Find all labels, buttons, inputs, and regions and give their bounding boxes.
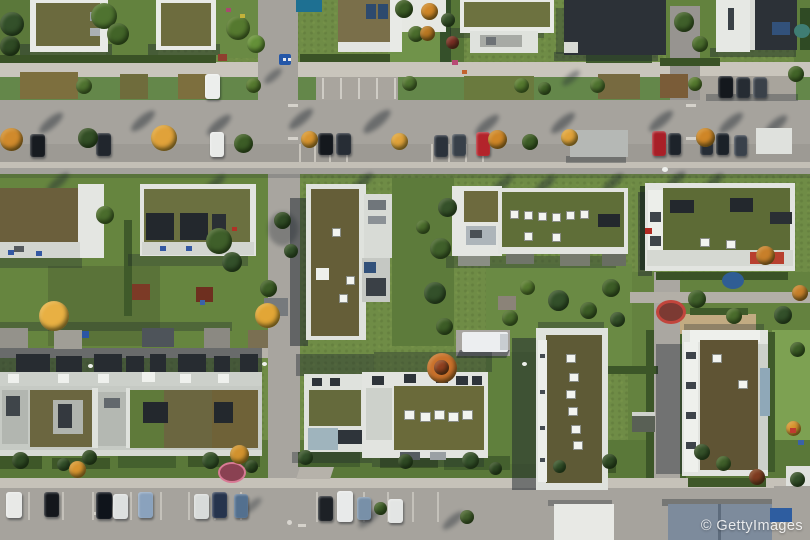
post (262, 362, 267, 366)
skylight (568, 407, 578, 416)
tree (692, 36, 708, 52)
green-roof (161, 3, 211, 46)
tree (694, 444, 710, 460)
autumn-tree (420, 26, 435, 41)
skylight (538, 212, 547, 221)
car (318, 133, 333, 155)
bay-line (28, 492, 30, 520)
sign-mark (283, 58, 286, 61)
shed (0, 328, 28, 348)
tree (0, 36, 20, 56)
tree (438, 198, 457, 217)
roof-clutter (330, 378, 340, 386)
solar-panel (378, 4, 388, 19)
solar-panel (180, 213, 208, 240)
car (716, 133, 729, 155)
post (662, 167, 668, 172)
window (686, 412, 696, 419)
building (338, 42, 392, 52)
autumn-tree (561, 129, 578, 146)
bay-line (358, 78, 360, 99)
garden-item (462, 70, 467, 74)
garden-item (200, 300, 205, 305)
solar-panel (214, 402, 233, 423)
roof-clutter (372, 376, 384, 385)
teal-roof (296, 0, 322, 12)
garden-item (218, 54, 227, 61)
road-dash (288, 104, 298, 107)
path (630, 292, 810, 303)
skylight (404, 410, 415, 420)
tree (245, 460, 258, 473)
sedum-bed (660, 74, 688, 98)
solar-panel (730, 198, 753, 212)
skylight (462, 410, 473, 420)
aerial-photograph: © GettyImages (0, 0, 810, 540)
bay-line (62, 492, 64, 520)
tree (790, 472, 805, 487)
road-vertical (258, 0, 298, 100)
tree (436, 318, 453, 335)
roof-clutter (404, 374, 416, 383)
playhouse (498, 296, 516, 310)
carport (570, 130, 628, 157)
autumn-tree (0, 128, 23, 151)
bay-line (376, 78, 378, 99)
roof-access (8, 374, 19, 383)
shed (632, 416, 655, 432)
terrace-clutter (602, 252, 626, 266)
bay-line (130, 492, 132, 520)
pool (722, 272, 744, 289)
tree (726, 308, 742, 324)
car (96, 133, 111, 156)
tree (520, 280, 535, 295)
roof-clutter (470, 230, 482, 238)
skylight (580, 210, 589, 219)
window (686, 382, 696, 389)
skylight (510, 210, 519, 219)
car (753, 77, 767, 98)
autumn-tree (434, 360, 449, 375)
terrace-clutter (560, 254, 590, 266)
tree (548, 290, 569, 311)
road-dash (686, 104, 696, 107)
getty-watermark: © GettyImages (701, 518, 803, 534)
tree (395, 0, 413, 18)
roof-clutter (650, 236, 661, 246)
window (686, 352, 696, 359)
carport (756, 128, 792, 154)
tree (460, 510, 474, 524)
tree (222, 252, 242, 272)
roof-clutter (456, 376, 468, 385)
skylight (434, 410, 445, 420)
garden-item (36, 251, 42, 256)
shadow-band (0, 168, 810, 178)
tree (430, 238, 451, 259)
garden-item (226, 8, 231, 12)
tree (688, 77, 702, 91)
window (540, 426, 545, 430)
bay-line (394, 78, 396, 99)
building-shadow (566, 156, 626, 163)
skylight (346, 276, 355, 285)
sedum-bed (120, 74, 148, 99)
car (736, 77, 750, 98)
post (88, 364, 93, 368)
manhole (287, 520, 292, 525)
tree (774, 306, 792, 324)
autumn-tree (255, 303, 280, 328)
tree (688, 290, 706, 308)
tree (462, 452, 479, 469)
roof-clutter (728, 8, 734, 30)
solar-panel (143, 402, 168, 423)
tree (790, 342, 805, 357)
hedge (660, 58, 720, 66)
skylight (566, 354, 576, 363)
tree (489, 462, 502, 475)
green-roof (164, 390, 212, 448)
roof-clutter (366, 278, 386, 296)
bay-line (448, 144, 450, 162)
tree (602, 279, 620, 297)
autumn-tree (792, 285, 808, 301)
garden-item (798, 440, 804, 445)
solar-panel (770, 212, 792, 224)
tree (274, 212, 291, 229)
autumn-tree (301, 131, 318, 148)
skylight (569, 373, 579, 382)
skylight (726, 240, 736, 249)
bay-line (437, 492, 439, 522)
skylight (524, 211, 533, 220)
autumn-tree (151, 125, 177, 151)
garden-item (452, 60, 458, 65)
window (540, 390, 545, 394)
building-shadow (656, 344, 682, 474)
glass-roof (308, 428, 338, 450)
roof-structure (150, 354, 166, 374)
bush-red (749, 469, 765, 485)
car (668, 133, 681, 155)
solar-panel (146, 213, 174, 240)
garden-item (240, 14, 245, 18)
dark-roof (564, 0, 666, 55)
roof-clutter (232, 227, 237, 231)
tree (502, 310, 518, 326)
roof-access (142, 372, 155, 382)
tree (206, 228, 232, 254)
parking-bay (316, 77, 398, 100)
tree (514, 78, 529, 93)
solar-panel (772, 22, 790, 35)
pool (794, 24, 810, 38)
roof-clutter (104, 398, 120, 408)
carport (554, 504, 614, 540)
tree (96, 206, 114, 224)
skylight (712, 354, 722, 363)
post (522, 362, 527, 366)
garden-item (790, 428, 796, 433)
solar-panel (364, 262, 376, 273)
roof-clutter (58, 404, 72, 428)
hedge (118, 455, 176, 468)
window (540, 458, 545, 462)
shed (248, 330, 268, 348)
roof-clutter (90, 28, 100, 36)
green-roof (309, 390, 361, 426)
building-shadow (512, 338, 538, 490)
bay-line (314, 144, 316, 162)
roof-clutter (650, 212, 661, 222)
window (540, 354, 545, 358)
skylight (524, 232, 533, 241)
hedge (604, 366, 658, 374)
bin (82, 331, 89, 338)
truck-cab (500, 334, 508, 350)
autumn-tree (696, 128, 715, 147)
autumn-tree (756, 246, 775, 265)
building-shadow (0, 322, 232, 331)
skylight (566, 211, 575, 220)
shed (132, 284, 150, 300)
skylight (566, 390, 576, 399)
bay-line (299, 144, 301, 162)
skylight (552, 213, 561, 222)
green-roof (311, 189, 359, 336)
green-roof (464, 191, 498, 222)
car (234, 494, 248, 518)
tree (107, 23, 129, 45)
green-roof (0, 188, 78, 242)
car (718, 76, 733, 98)
terrace (366, 388, 392, 440)
solar-panel (598, 214, 620, 227)
hedge (0, 55, 216, 63)
tree (284, 244, 298, 258)
tree (553, 460, 566, 473)
road-dash (686, 137, 696, 140)
roof-clutter (14, 246, 24, 252)
bay-line (431, 144, 433, 162)
tree (246, 78, 261, 93)
tree (226, 16, 250, 40)
tree (402, 76, 417, 91)
roof-clutter (486, 37, 496, 45)
roof-access (180, 374, 191, 383)
solar-panel (670, 200, 694, 213)
tree (716, 456, 731, 471)
car (734, 135, 747, 156)
garden-item (160, 246, 166, 251)
autumn-tree (488, 130, 507, 149)
green-roof (464, 2, 550, 27)
car (357, 497, 371, 520)
car (212, 492, 227, 518)
car (336, 133, 351, 155)
skylight (738, 380, 748, 389)
car (44, 492, 59, 517)
autumn-tree (39, 301, 69, 331)
skylight (332, 228, 341, 237)
tree (202, 452, 219, 469)
autumn-tree (391, 133, 408, 150)
tree (398, 454, 413, 469)
roof-clutter (645, 228, 652, 234)
building (564, 42, 578, 53)
car (452, 134, 466, 156)
autumn-tree (230, 445, 249, 464)
tree (590, 78, 605, 93)
tree (298, 450, 313, 465)
skylight (573, 441, 583, 450)
tree (610, 312, 625, 327)
bush-red (446, 36, 459, 49)
tree (260, 280, 277, 297)
roof-clutter (472, 376, 482, 385)
car (113, 494, 128, 519)
container (142, 328, 174, 347)
car (205, 74, 220, 99)
skylight (420, 412, 431, 422)
roof-access (58, 374, 69, 383)
tree (12, 452, 29, 469)
tree (82, 450, 97, 465)
trampoline (218, 462, 246, 483)
tree (580, 302, 597, 319)
building (0, 450, 262, 456)
car (652, 131, 666, 156)
car (388, 499, 403, 523)
car (337, 491, 353, 522)
tree (788, 66, 804, 82)
autumn-tree (421, 3, 438, 20)
garden-item (8, 250, 14, 255)
hedge (124, 220, 132, 316)
roof-clutter (368, 216, 386, 224)
tree (0, 12, 24, 36)
sedum-bed (20, 72, 78, 99)
bay-line (412, 492, 414, 522)
bay-line (92, 492, 94, 520)
sign-mark (288, 58, 291, 61)
bay-line (160, 492, 162, 520)
bay-line (340, 78, 342, 99)
roof-clutter (312, 378, 322, 386)
car (30, 134, 45, 157)
roof-clutter (316, 268, 329, 280)
trampoline (656, 300, 686, 324)
car (138, 492, 153, 518)
skylight (571, 425, 581, 434)
skylight (700, 238, 710, 247)
roof-clutter (368, 200, 386, 210)
shed (204, 328, 230, 348)
tree (374, 502, 387, 515)
glass-balcony (760, 368, 770, 416)
roof-clutter (430, 452, 446, 460)
tree (416, 220, 430, 234)
roof-access (218, 374, 229, 383)
car (194, 494, 209, 519)
roof-clutter (6, 396, 20, 416)
car (6, 492, 22, 518)
tree (441, 13, 455, 27)
tree (602, 454, 617, 469)
tree (538, 82, 551, 95)
car (434, 135, 448, 157)
tree (247, 35, 265, 53)
autumn-tree (69, 461, 86, 478)
skylight (552, 233, 561, 242)
tree (78, 128, 98, 148)
garden-item (186, 246, 192, 251)
road-dash (288, 137, 298, 140)
car (210, 132, 224, 157)
shed (54, 330, 82, 349)
tree (424, 282, 446, 304)
tree (234, 134, 253, 153)
skylight (448, 412, 459, 422)
skylight (339, 294, 348, 303)
tree (674, 12, 694, 32)
green-roof (36, 3, 100, 46)
car (96, 492, 112, 519)
bay-line (188, 492, 190, 520)
tree (522, 134, 538, 150)
car (318, 496, 333, 521)
tree (76, 78, 92, 94)
solar-panel (366, 4, 376, 19)
hedge (300, 54, 390, 62)
road-dash (298, 524, 306, 527)
hedge (646, 330, 654, 478)
roof-access (98, 374, 109, 383)
bay-line (322, 78, 324, 99)
